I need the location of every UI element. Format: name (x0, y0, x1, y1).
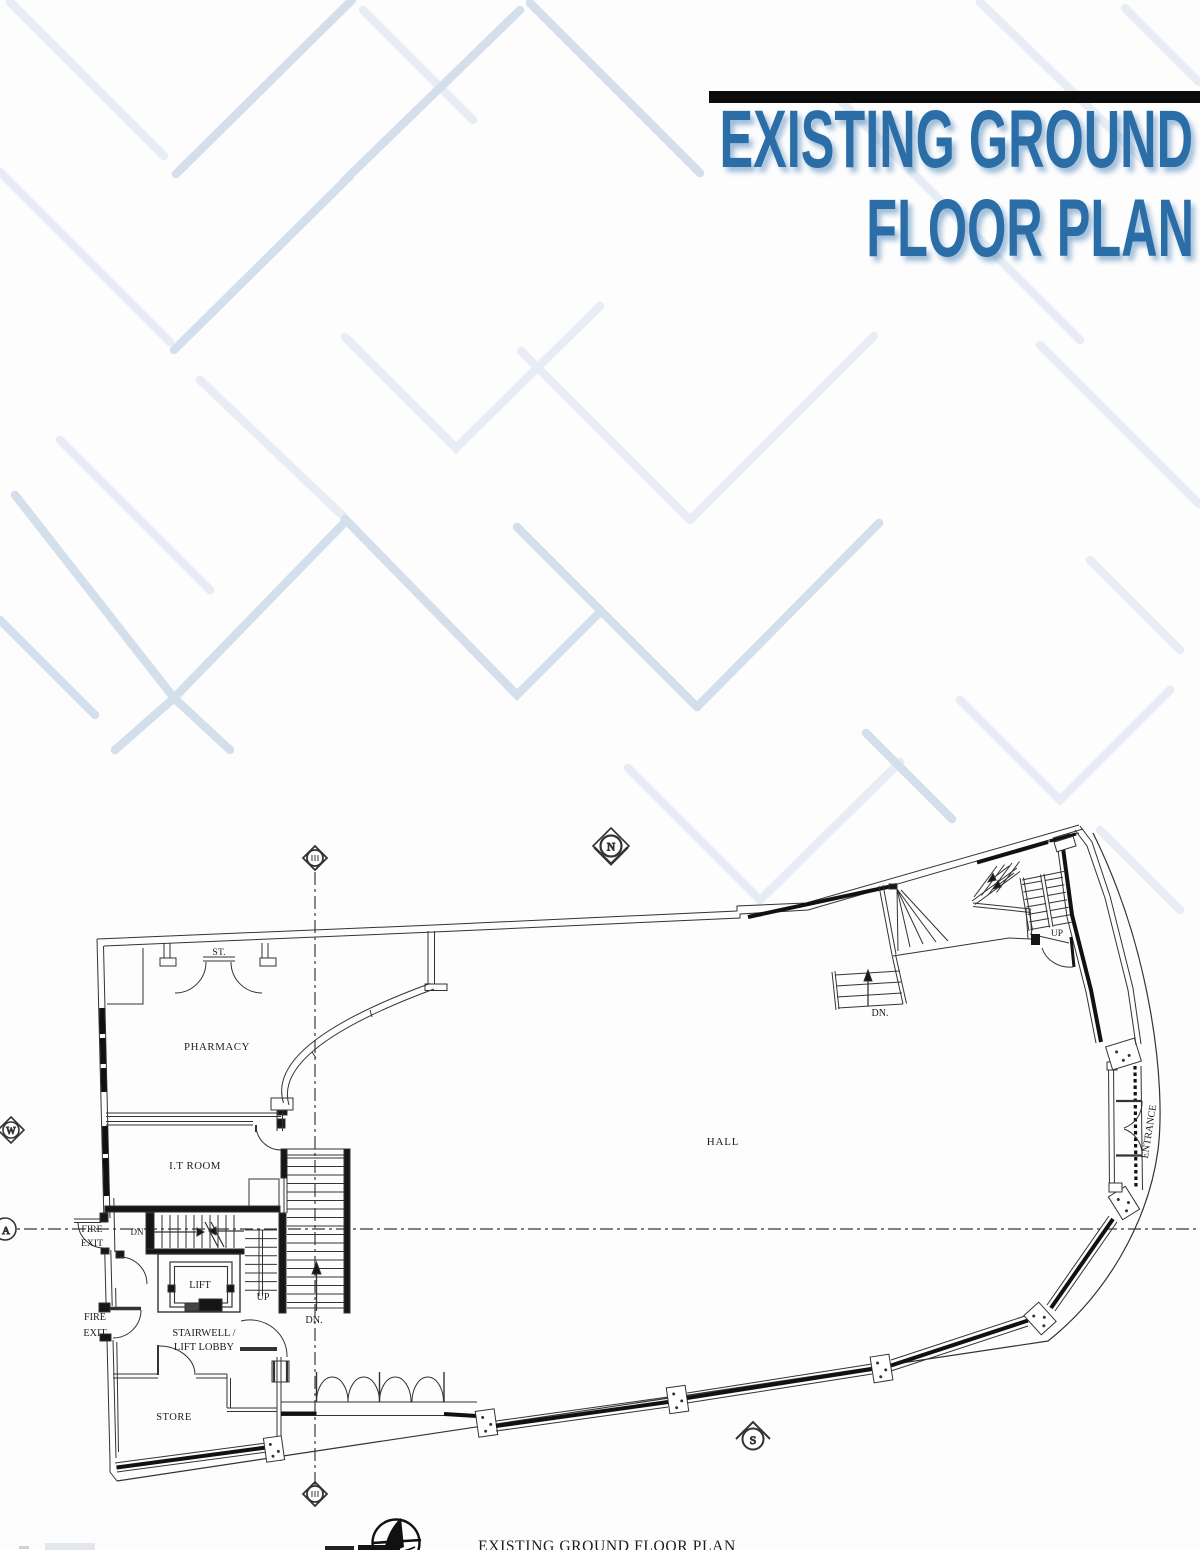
svg-text:EXIT: EXIT (81, 1238, 103, 1249)
svg-text:STORE: STORE (156, 1412, 192, 1423)
svg-text:LIFT LOBBY: LIFT LOBBY (174, 1342, 235, 1353)
svg-text:S: S (750, 1433, 757, 1447)
svg-text:EXISTING GROUND: EXISTING GROUND (720, 94, 1193, 186)
svg-text:I.T ROOM: I.T ROOM (169, 1160, 221, 1172)
svg-text:HALL: HALL (707, 1136, 740, 1148)
svg-text:FIRE: FIRE (84, 1312, 106, 1323)
svg-text:W: W (6, 1126, 16, 1137)
svg-text:EXIT: EXIT (83, 1328, 107, 1339)
svg-text:FIRE: FIRE (81, 1224, 102, 1235)
svg-text:LIFT: LIFT (189, 1280, 211, 1291)
svg-text:A: A (2, 1225, 10, 1237)
svg-text:DN.: DN. (872, 1008, 889, 1019)
svg-text:DN.: DN. (305, 1315, 322, 1326)
svg-text:N: N (607, 842, 616, 854)
svg-text:DN: DN (131, 1227, 144, 1237)
svg-text:UP: UP (1051, 929, 1063, 939)
svg-text:EXISTING GROUND FLOOR PLAN: EXISTING GROUND FLOOR PLAN (478, 1538, 736, 1550)
svg-text:FLOOR PLAN: FLOOR PLAN (866, 183, 1194, 275)
svg-text:UP: UP (257, 1292, 270, 1303)
svg-text:STAIRWELL /: STAIRWELL / (172, 1328, 235, 1339)
svg-text:ST.: ST. (212, 947, 225, 958)
svg-text:PHARMACY: PHARMACY (184, 1041, 250, 1053)
